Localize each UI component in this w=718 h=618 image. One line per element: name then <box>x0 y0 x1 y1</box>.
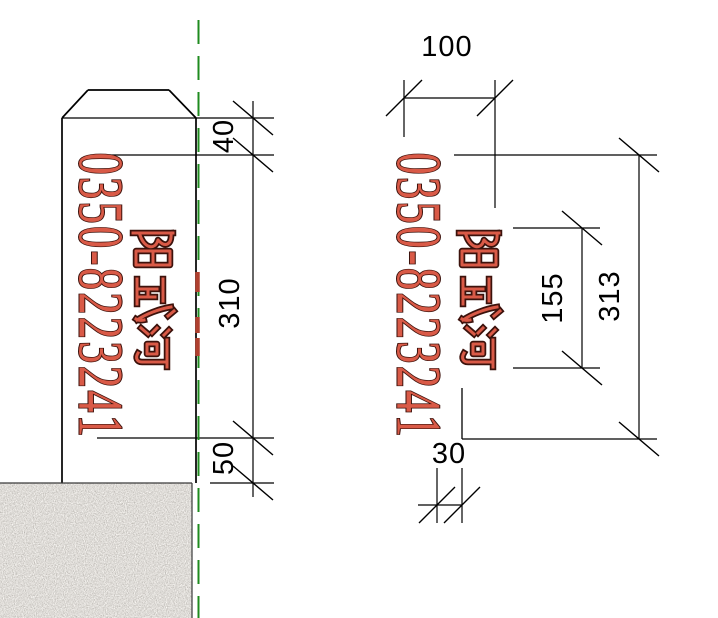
phone-number-side: 0350-8223241 <box>385 146 452 446</box>
dim-top-to-text: 40 <box>209 76 239 196</box>
panel-bottom-edge <box>462 388 657 439</box>
drawing-canvas: 0350-8223241 0350-8223241 40 310 50 100 … <box>0 0 718 618</box>
ground-granite-texture <box>0 483 192 618</box>
phone-number-front: 0350-8223241 <box>67 146 134 446</box>
river-name-front <box>133 233 174 367</box>
dim-text-to-ground: 50 <box>209 398 239 518</box>
river-name-side <box>459 233 500 367</box>
dim-label-total-height: 313 <box>595 236 625 356</box>
dimension-line-offset <box>418 468 462 523</box>
dim-post-width: 100 <box>387 32 507 62</box>
dim-river-name-height: 155 <box>538 238 568 358</box>
dim-text-band-height: 310 <box>215 243 245 363</box>
